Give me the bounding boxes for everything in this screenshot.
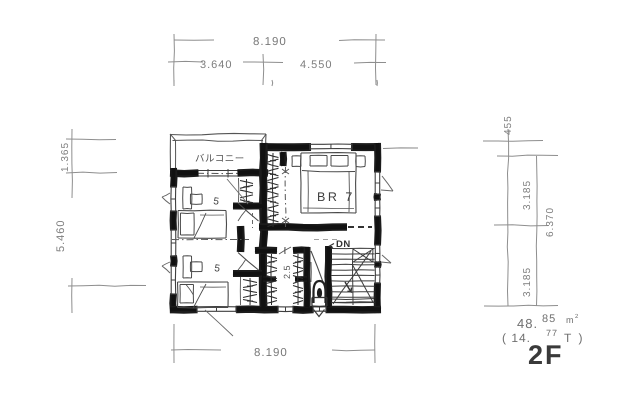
svg-text:バルコニー: バルコニー <box>195 154 245 165</box>
svg-text:85: 85 <box>542 313 556 325</box>
svg-text:DN: DN <box>336 239 351 250</box>
svg-text:1.365: 1.365 <box>60 142 71 172</box>
svg-text:4.550: 4.550 <box>300 59 333 71</box>
svg-text:8.190: 8.190 <box>253 36 287 48</box>
svg-text:( 14.: ( 14. <box>502 331 531 345</box>
svg-text:3.185: 3.185 <box>522 267 533 297</box>
svg-text:5.460: 5.460 <box>55 219 67 252</box>
svg-text:8.190: 8.190 <box>254 347 288 359</box>
svg-text:3.185: 3.185 <box>522 180 533 210</box>
svg-text:m: m <box>566 315 574 325</box>
svg-text:77: 77 <box>546 328 558 338</box>
svg-text:6.370: 6.370 <box>545 207 556 237</box>
svg-text:2F: 2F <box>528 340 564 370</box>
svg-text:BR 7: BR 7 <box>317 190 355 204</box>
svg-text:48.: 48. <box>517 316 538 331</box>
svg-text:T ): T ) <box>564 331 584 345</box>
svg-text:3.640: 3.640 <box>200 59 233 71</box>
svg-text:2.5: 2.5 <box>282 265 292 279</box>
svg-text:455: 455 <box>503 115 514 135</box>
